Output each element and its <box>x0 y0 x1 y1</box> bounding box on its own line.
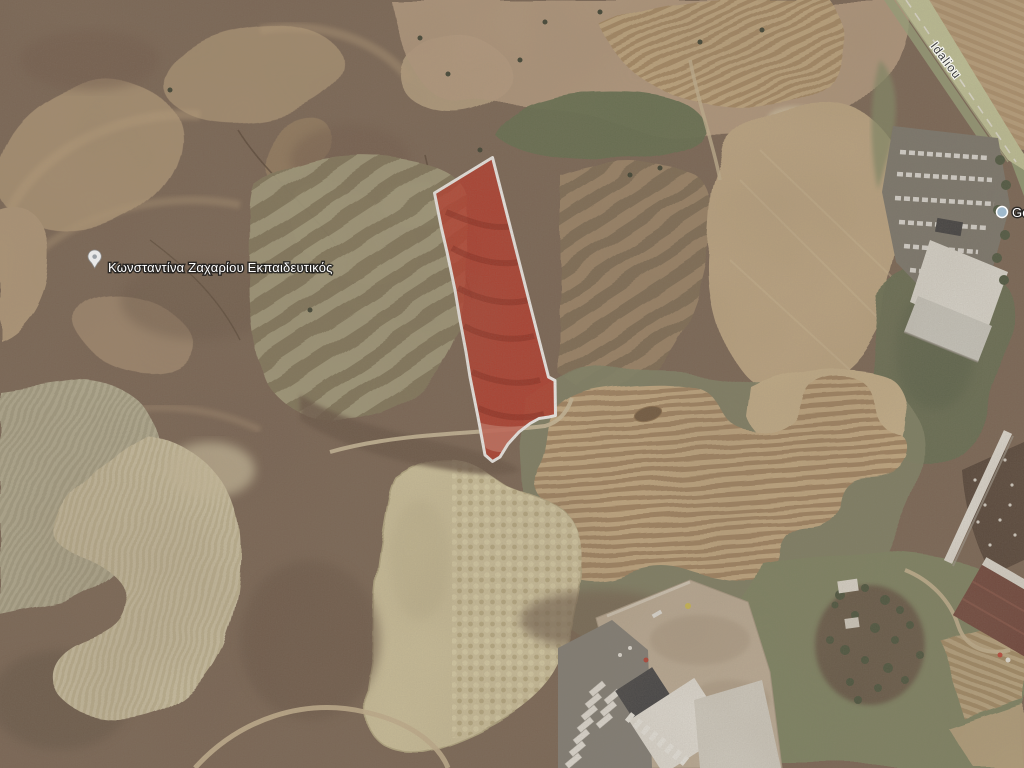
photo-grain-overlay <box>0 0 1024 768</box>
poi-label-left[interactable]: Κωνσταντίνα Ζαχαρίου Εκπαιδευτικός <box>108 260 333 275</box>
poi-label-right[interactable]: Golden <box>1012 205 1024 220</box>
satellite-map-view[interactable]: Κωνσταντίνα Ζαχαρίου Εκπαιδευτικός Golde… <box>0 0 1024 768</box>
map-pin-icon[interactable] <box>997 207 1008 218</box>
